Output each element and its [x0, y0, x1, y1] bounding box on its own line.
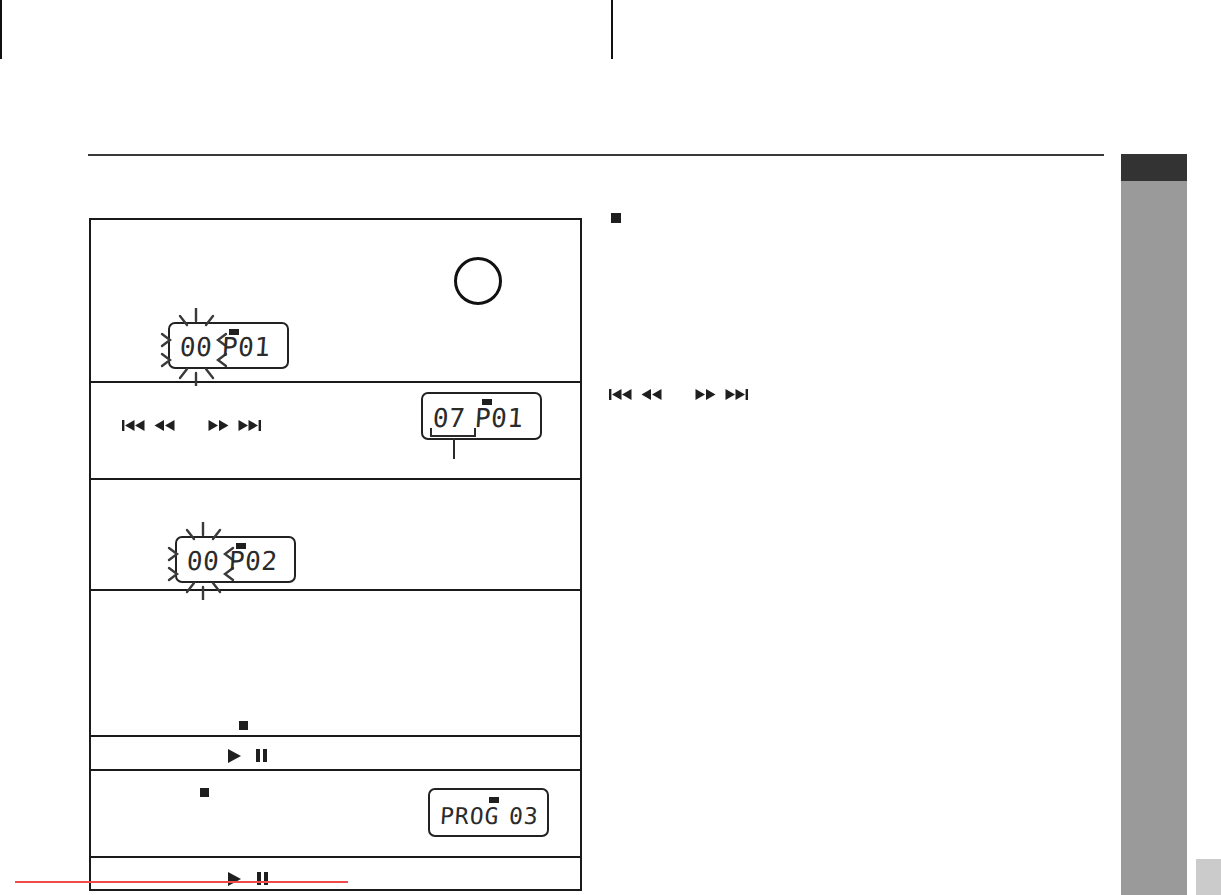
- icon-spacer: [184, 425, 199, 426]
- transport-icons: [122, 420, 261, 431]
- manual-page: 00 P01: [0, 0, 1221, 895]
- section-rule: [88, 154, 1104, 156]
- lcd-prog-count: 03: [509, 805, 540, 828]
- steps-table: 00 P01: [89, 218, 582, 891]
- table-row-step4: [91, 591, 580, 737]
- table-row-step1: 00 P01: [91, 220, 580, 383]
- section-tab: [1121, 154, 1187, 181]
- lcd-display-1: 00 P01: [168, 322, 289, 369]
- pause-icon: [257, 872, 268, 885]
- lcd-prog-label: PROG: [439, 805, 500, 828]
- circle-button-icon: [454, 257, 502, 305]
- header-divider-mid: [611, 0, 613, 59]
- table-row-step2: 07 P01: [91, 383, 580, 480]
- side-bar: [1121, 181, 1187, 895]
- lcd-display-2: 07 P01: [421, 392, 542, 440]
- icon-spacer: [671, 394, 686, 395]
- skip-back-icon: [122, 420, 145, 431]
- rewind-icon: [641, 389, 662, 400]
- table-row-step6: PROG 03: [91, 771, 580, 858]
- lcd-display-4: PROG 03: [428, 788, 549, 837]
- stop-icon: [239, 721, 248, 730]
- skip-forward-icon: [238, 420, 261, 431]
- notes-transport-icons: [609, 389, 748, 400]
- square-bullet: [611, 213, 621, 223]
- lcd-display-3: 00 P02: [175, 536, 296, 583]
- skip-forward-icon: [725, 389, 748, 400]
- table-row-step7: [91, 858, 580, 889]
- pointer-tick: [453, 438, 455, 459]
- header-divider-left: [0, 0, 2, 59]
- play-icon: [228, 749, 241, 763]
- red-underline-marker: [15, 881, 348, 883]
- track-underline: [430, 428, 476, 437]
- stop-icon: [200, 788, 209, 797]
- table-row-step5: [91, 737, 580, 771]
- table-row-step3: 00 P02: [91, 480, 580, 591]
- lcd-program-number: P02: [228, 548, 278, 574]
- lcd-track-number: 00: [179, 334, 213, 360]
- fast-forward-icon: [208, 420, 229, 431]
- pause-icon: [256, 749, 267, 762]
- lcd-program-number: P01: [221, 334, 271, 360]
- fast-forward-icon: [695, 389, 716, 400]
- page-corner-badge: [1196, 859, 1221, 895]
- play-icon: [228, 872, 241, 886]
- skip-back-icon: [609, 389, 632, 400]
- lcd-track-number: 00: [186, 548, 220, 574]
- lcd-program-number: P01: [474, 405, 524, 431]
- rewind-icon: [154, 420, 175, 431]
